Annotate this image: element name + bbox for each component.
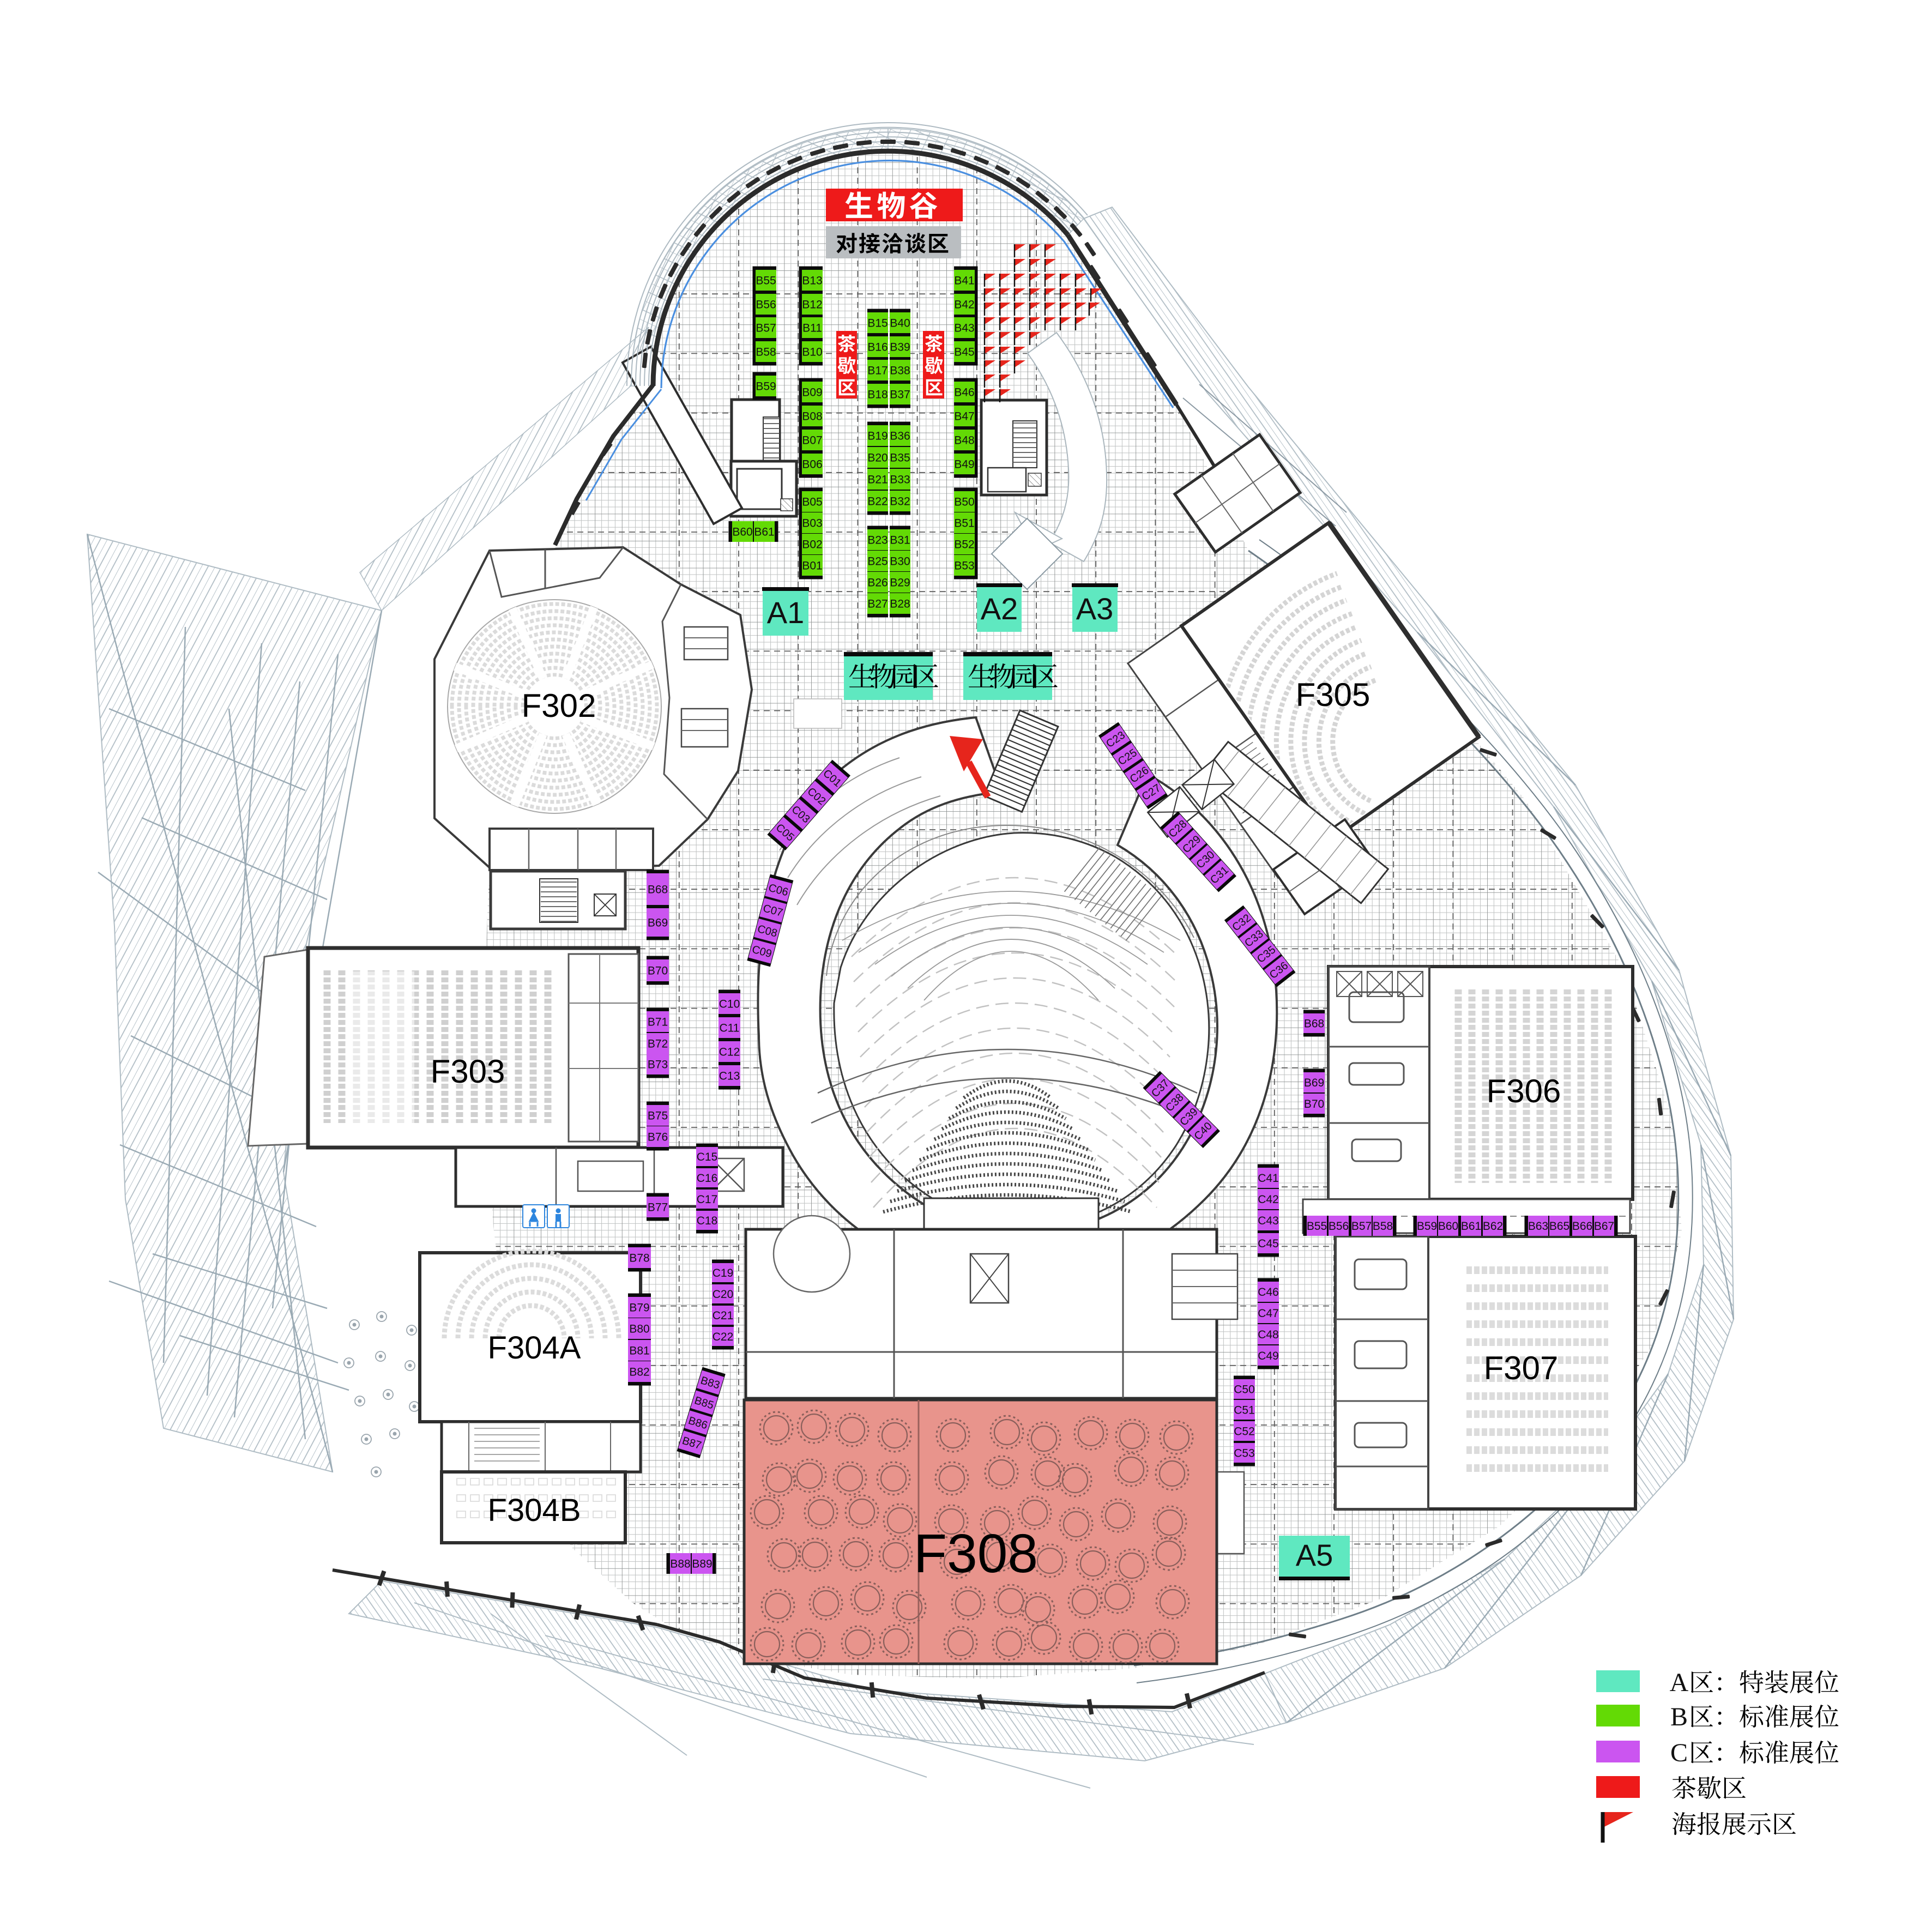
svg-text:C43: C43 [1258,1215,1279,1227]
svg-text:F303: F303 [431,1053,505,1090]
svg-text:B47: B47 [954,410,974,423]
svg-text:B50: B50 [954,496,974,509]
svg-text:B10: B10 [802,346,822,359]
svg-text:B52: B52 [954,539,974,551]
svg-text:C50: C50 [1234,1384,1255,1396]
svg-text:B30: B30 [890,556,910,568]
svg-text:B08: B08 [802,410,822,423]
svg-text:B59: B59 [756,381,776,393]
svg-text:B: B [1670,1702,1688,1731]
svg-text:F307: F307 [1484,1350,1559,1386]
svg-text:B17: B17 [867,365,887,377]
svg-text:B57: B57 [756,322,776,335]
svg-text:B66: B66 [1572,1220,1592,1233]
svg-text:B55: B55 [756,275,776,287]
svg-text:B51: B51 [954,517,974,530]
svg-text:B07: B07 [802,434,822,447]
svg-text:C52: C52 [1234,1426,1255,1438]
svg-text:B89: B89 [692,1558,712,1571]
svg-text:B71: B71 [648,1016,668,1029]
svg-text:B56: B56 [756,299,776,311]
svg-text:B11: B11 [802,322,822,335]
svg-text:B69: B69 [648,917,668,929]
svg-text:A5: A5 [1296,1538,1333,1572]
svg-text:B80: B80 [629,1323,649,1336]
svg-text:B73: B73 [648,1059,668,1071]
svg-text:B35: B35 [890,452,910,464]
svg-text:B82: B82 [629,1366,649,1379]
svg-text:B09: B09 [802,387,822,399]
svg-text:B65: B65 [1549,1220,1569,1233]
svg-text:B38: B38 [890,365,910,377]
svg-text:B28: B28 [890,598,910,611]
svg-text:C42: C42 [1258,1193,1279,1206]
svg-text:B60: B60 [732,526,752,539]
svg-text:B49: B49 [954,458,974,471]
svg-text:B41: B41 [954,275,974,287]
svg-text:B72: B72 [648,1038,668,1050]
svg-text:B45: B45 [954,346,974,359]
svg-text:F302: F302 [522,687,596,724]
svg-text:B68: B68 [1304,1018,1324,1030]
svg-text:B70: B70 [1304,1098,1324,1110]
svg-text:B36: B36 [890,430,910,443]
svg-text:C18: C18 [697,1215,718,1227]
svg-text:C41: C41 [1258,1172,1279,1185]
svg-text:C12: C12 [719,1046,740,1059]
svg-text:B40: B40 [890,317,910,330]
svg-text:B62: B62 [1483,1220,1503,1233]
svg-text:F305: F305 [1296,677,1370,713]
svg-text:B88: B88 [670,1558,690,1571]
svg-text:B78: B78 [629,1252,649,1265]
svg-text:A1: A1 [767,595,805,630]
svg-text:B70: B70 [648,965,668,977]
svg-text:C20: C20 [713,1288,734,1301]
svg-text:B68: B68 [648,884,668,896]
svg-text:C16: C16 [697,1172,718,1185]
svg-text:B15: B15 [867,317,887,330]
svg-text:B37: B37 [890,389,910,401]
svg-text:B58: B58 [756,346,776,359]
svg-text:C48: C48 [1258,1329,1279,1341]
svg-text:B81: B81 [629,1345,649,1357]
svg-text:B61: B61 [1461,1220,1481,1233]
svg-text:B53: B53 [954,560,974,572]
svg-text:B59: B59 [1417,1220,1437,1233]
svg-text:B55: B55 [1307,1220,1327,1233]
svg-text:B01: B01 [802,560,822,572]
svg-text:B29: B29 [890,577,910,589]
svg-text:B05: B05 [802,496,822,509]
svg-text:C: C [1670,1738,1688,1767]
svg-text:A: A [1670,1668,1689,1697]
svg-text:B69: B69 [1304,1077,1324,1089]
svg-text:C53: C53 [1234,1447,1255,1460]
svg-text:C19: C19 [713,1267,734,1279]
svg-text:A3: A3 [1076,591,1114,626]
svg-text:C11: C11 [720,1022,740,1035]
svg-text:C22: C22 [713,1331,734,1343]
svg-text:B58: B58 [1373,1220,1393,1233]
svg-text:F304B: F304B [488,1493,581,1528]
svg-text:B02: B02 [802,539,822,551]
svg-text:B20: B20 [867,452,887,464]
svg-text:B13: B13 [802,275,822,287]
svg-text:C13: C13 [719,1070,740,1083]
svg-text:F306: F306 [1487,1073,1561,1109]
svg-text:C47: C47 [1258,1307,1279,1320]
svg-text:B31: B31 [890,534,910,547]
svg-text:B33: B33 [890,474,910,486]
svg-text:B12: B12 [802,299,822,311]
svg-text:F308: F308 [914,1523,1038,1584]
svg-text:B79: B79 [629,1302,649,1314]
svg-text:F304A: F304A [488,1330,581,1366]
svg-text:B23: B23 [867,534,887,547]
svg-text:B32: B32 [890,496,910,508]
svg-text:B57: B57 [1351,1220,1372,1233]
svg-text:C10: C10 [719,998,740,1011]
svg-text:B48: B48 [954,434,974,447]
svg-text:B60: B60 [1438,1220,1458,1233]
svg-text:B61: B61 [754,526,774,539]
svg-text:B39: B39 [890,341,910,354]
svg-text:B26: B26 [867,577,887,589]
svg-text:B18: B18 [867,389,887,401]
svg-text:C45: C45 [1258,1237,1279,1250]
svg-text:B42: B42 [954,299,974,311]
svg-text:A2: A2 [981,591,1018,626]
svg-text:B25: B25 [867,556,887,568]
svg-text:B19: B19 [867,430,887,443]
svg-text:B46: B46 [954,387,974,399]
svg-text:C51: C51 [1234,1404,1255,1417]
svg-text:B56: B56 [1329,1220,1349,1233]
svg-text:B16: B16 [867,341,887,354]
svg-text:C49: C49 [1258,1350,1279,1362]
svg-text:B27: B27 [867,598,887,611]
svg-text:C21: C21 [713,1309,734,1322]
svg-text:B21: B21 [867,474,887,486]
svg-text:B75: B75 [648,1110,668,1122]
svg-text:B06: B06 [802,458,822,471]
svg-text:B22: B22 [867,496,887,508]
svg-text:C15: C15 [697,1151,718,1163]
svg-text:B63: B63 [1528,1220,1548,1233]
svg-text:B03: B03 [802,517,822,530]
svg-text:C46: C46 [1258,1286,1279,1299]
svg-text:B76: B76 [648,1131,668,1144]
svg-text:B77: B77 [648,1202,668,1214]
svg-text:C17: C17 [697,1193,718,1206]
svg-text:B67: B67 [1594,1220,1614,1233]
svg-text:B43: B43 [954,322,974,335]
